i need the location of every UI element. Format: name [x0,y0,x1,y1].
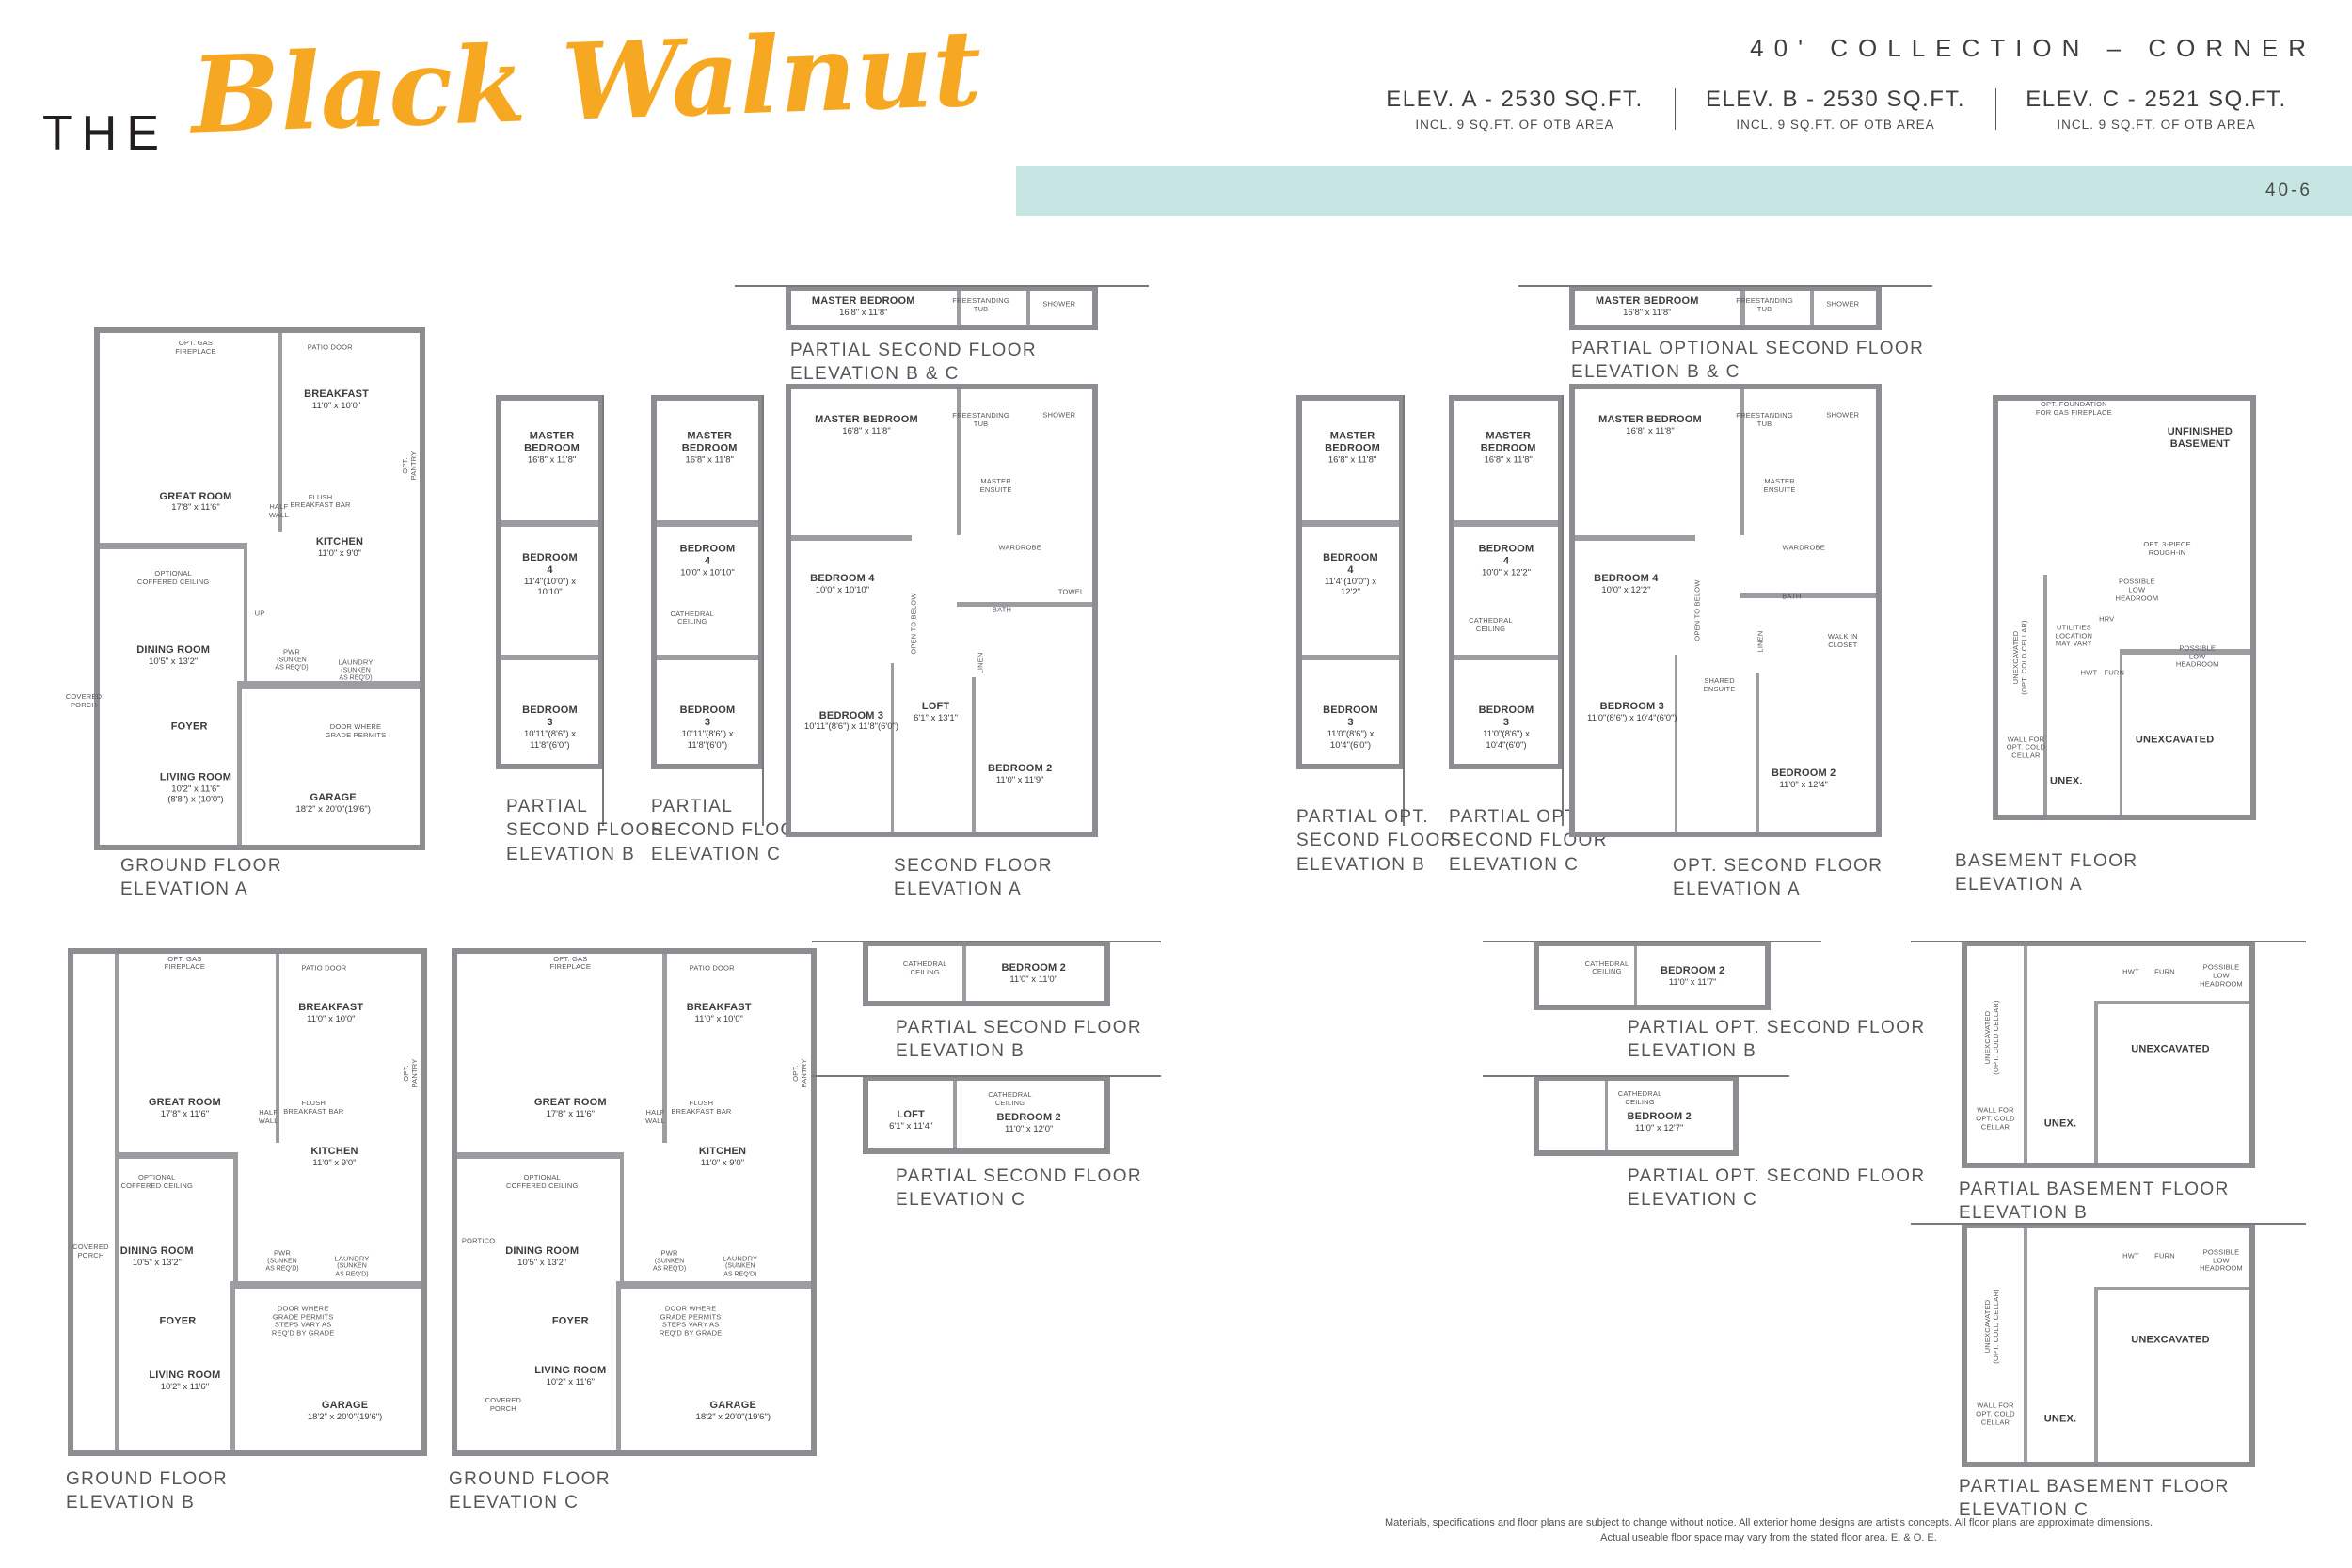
room-dimensions: 10'5" x 13'2" [120,1258,194,1268]
room-dimensions: 11'0" x 12'4" [1772,779,1836,789]
room-dimensions: 16'8" x 11'8" [812,307,915,317]
room-label: DINING ROOM10'5" x 13'2" [136,644,210,667]
room-name: BEDROOM 4 [1479,543,1534,567]
room-dimensions: 17'8" x 11'6" [149,1109,221,1119]
room-label: UTILITIES LOCATION MAY VARY [2056,625,2092,650]
room-dimensions: 16'8" x 11'8" [524,455,580,466]
room-label: FREESTANDING TUB [952,412,1009,429]
room-name: PATIO DOOR [301,964,346,973]
room-name: HWT [2122,1252,2139,1260]
room-dimensions: 16'8" x 11'8" [815,425,918,436]
room-label: OPT. GAS FIREPLACE [175,340,215,356]
room-name: MASTER ENSUITE [1764,479,1796,496]
room-name: OPT. GAS FIREPLACE [175,340,215,356]
room-name: UNEXCAVATED (OPT. COLD CELLAR) [1984,1000,2001,1074]
room-dimensions: (SUNKEN AS REQ'D) [723,1263,757,1279]
room-dimensions: (SUNKEN AS REQ'D) [653,1259,686,1275]
room-label: FLUSH BREAKFAST BAR [671,1100,731,1117]
room-name: PWR [265,1250,298,1259]
room-label: OPT. PANTRY [792,1058,809,1087]
room-label: FLUSH BREAKFAST BAR [291,494,351,511]
plan-caption-bc-top-1: PARTIAL SECOND FLOOR ELEVATION B & C [790,339,1037,387]
room-dimensions: 10'2" x 11'6" [149,1382,220,1392]
interior-wall [501,655,598,660]
room-label: LAUNDRY(SUNKEN AS REQ'D) [334,1255,369,1278]
room-label: BEDROOM 311'0"(8'6") x 10'4"(6'0") [1587,701,1677,723]
room-label: LINEN [1757,630,1766,652]
room-label: LAUNDRY(SUNKEN AS REQ'D) [338,658,373,682]
room-label: OPT. GAS FIREPLACE [165,956,205,973]
room-label: WALL FOR OPT. COLD CELLAR [2007,736,2045,761]
room-label: TOWEL [1058,589,1085,597]
room-name: UNEXCAVATED (OPT. COLD CELLAR) [1984,1289,2001,1363]
room-label: OPT. PANTRY [403,1058,420,1087]
room-name: BEDROOM 3 [522,705,578,729]
room-name: MASTER BEDROOM [524,431,580,455]
room-label: OPEN TO BELOW [1694,579,1703,641]
room-dimensions: 11'0" x 9'0" [316,548,363,559]
room-label: UNEXCAVATED [2131,1044,2209,1056]
room-label: KITCHEN11'0" x 9'0" [310,1146,358,1168]
room-name: BEDROOM 4 [680,543,736,567]
room-label: BEDROOM 211'0" x 11'0" [1001,962,1065,985]
room-name: BEDROOM 2 [1772,768,1836,780]
room-name: FREESTANDING TUB [952,412,1009,429]
room-dimensions: 18'2" x 20'0"(19'6") [696,1412,771,1422]
room-label: MASTER BEDROOM16'8" x 11'8" [815,414,918,436]
room-name: UNEXCAVATED (OPT. COLD CELLAR) [2012,620,2029,694]
room-label: OPT. FOUNDATION FOR GAS FIREPLACE [2036,401,2112,418]
room-label: BEDROOM 211'0" x 11'9" [988,763,1052,785]
interior-wall [2024,946,2027,1163]
room-label: LOFT6'1" x 11'4" [889,1109,932,1132]
plan-caption-partial-opt-2nd-b-r1: PARTIAL OPT. SECOND FLOOR ELEVATION B [1296,805,1455,877]
room-dimensions: 16'8" x 11'8" [1598,425,1702,436]
room-dimensions: 10'0" x 10'10" [680,567,736,578]
room-name: UNEX. [2044,1117,2077,1130]
interior-wall [2094,1001,2098,1164]
room-name: GREAT ROOM [160,490,232,502]
room-name: DOOR WHERE GRADE PERMITS [326,723,387,740]
room-label: WALL FOR OPT. COLD CELLAR [1976,1107,2014,1132]
room-name: PATIO DOOR [308,344,353,353]
room-name: FREESTANDING TUB [1736,297,1793,314]
room-dimensions: 10'0" x 12'2" [1479,567,1534,578]
room-name: DINING ROOM [505,1245,579,1258]
room-label: PATIO DOOR [690,964,735,973]
floorplan-bc-top-1: MASTER BEDROOM16'8" x 11'8"FREESTANDING … [786,285,1098,330]
room-name: BEDROOM 3 [804,709,898,721]
room-label: MASTER ENSUITE [980,479,1012,496]
room-dimensions: 10'2" x 11'6" [534,1377,606,1387]
interior-wall [1634,946,1638,1005]
room-label: COVERED PORCH [72,1243,109,1260]
interior-wall [620,1152,625,1281]
room-label: BEDROOM 211'0" x 11'7" [1661,965,1724,988]
interior-wall [972,677,976,832]
room-name: CATHEDRAL CEILING [670,610,714,627]
room-name: PWR [653,1250,686,1259]
room-label: WARDROBE [1782,545,1825,553]
room-name: FLUSH BREAKFAST BAR [283,1100,343,1117]
room-dimensions: 10'5" x 13'2" [136,657,210,667]
room-name: FREESTANDING TUB [1736,412,1793,429]
interior-wall [1454,655,1558,660]
room-dimensions: 11'0" x 12'7" [1628,1123,1692,1133]
room-name: BEDROOM 2 [996,1112,1060,1124]
room-label: BEDROOM 211'0" x 12'0" [996,1112,1060,1134]
room-label: PWR(SUNKEN AS REQ'D) [265,1250,298,1274]
plan-caption-opt-bc-top: PARTIAL OPTIONAL SECOND FLOOR ELEVATION … [1571,337,1924,385]
room-label: DINING ROOM10'5" x 13'2" [505,1245,579,1268]
room-label: LOFT6'1" x 13'1" [914,701,958,723]
interior-wall [237,681,242,845]
room-name: OPT. PANTRY [402,451,419,481]
floorplan-ground-b: OPT. GAS FIREPLACEPATIO DOORBREAKFAST11'… [68,948,427,1456]
room-label: PATIO DOOR [308,344,353,353]
room-label: FOYER [160,1315,197,1327]
room-label: SHOWER [1042,412,1075,420]
room-label: CATHEDRAL CEILING [903,961,947,978]
room-name: MASTER BEDROOM [812,294,915,307]
room-name: UNEXCAVATED [2131,1335,2209,1347]
room-name: TOWEL [1058,589,1085,597]
plan-caption-ground-b: GROUND FLOOR ELEVATION B [66,1467,228,1515]
room-name: WALL FOR OPT. COLD CELLAR [1976,1402,2014,1428]
room-label: MASTER BEDROOM16'8" x 11'8" [1325,431,1380,466]
room-label: UNEXCAVATED (OPT. COLD CELLAR) [1984,1000,2001,1074]
room-label: OPT. 3-PIECE ROUGH-IN [2143,542,2190,559]
room-dimensions: (SUNKEN AS REQ'D) [275,657,308,673]
room-dimensions: (SUNKEN AS REQ'D) [265,1259,298,1275]
room-name: LINEN [977,653,985,674]
room-label: PWR(SUNKEN AS REQ'D) [653,1250,686,1274]
room-dimensions: 16'8" x 11'8" [1481,455,1536,466]
room-label: BEDROOM 411'4"(10'0") x 10'10" [522,552,578,597]
interior-wall [616,1281,621,1450]
room-name: GREAT ROOM [534,1097,607,1109]
room-name: BEDROOM 4 [1323,552,1378,577]
interior-wall [230,1281,422,1288]
room-label: UNFINISHED BASEMENT [2168,426,2233,451]
room-label: UNEXCAVATED (OPT. COLD CELLAR) [1984,1289,2001,1363]
floorplan-partial-2nd-b-r2: CATHEDRAL CEILINGBEDROOM 211'0" x 11'0" [863,941,1110,1006]
brochure-page: THE Black Walnut 40' COLLECTION – CORNER… [0,0,2352,1568]
room-name: HALF WALL [645,1109,665,1126]
plan-caption-partial-opt-2nd-b-r2: PARTIAL OPT. SECOND FLOOR ELEVATION B [1628,1016,1926,1064]
interior-wall [957,602,1092,608]
interior-wall [962,946,966,1001]
room-name: LIVING ROOM [534,1365,606,1377]
interior-wall [1756,673,1759,832]
interior-wall [115,1152,233,1158]
room-name: SHOWER [1826,301,1859,309]
room-label: BREAKFAST11'0" x 10'0" [298,1002,363,1024]
room-dimensions: 17'8" x 11'6" [534,1109,607,1119]
interior-wall [1740,593,1876,598]
room-label: SHARED ENSUITE [1704,677,1736,694]
room-label: CATHEDRAL CEILING [988,1091,1032,1108]
room-name: LOFT [889,1109,932,1121]
room-dimensions: 11'0" x 12'0" [996,1124,1060,1134]
room-name: DINING ROOM [136,644,210,657]
room-label: GARAGE18'2" x 20'0"(19'6") [308,1400,382,1422]
room-label: FOYER [552,1315,589,1327]
room-name: MASTER BEDROOM [1598,414,1702,426]
interior-wall [244,543,247,681]
room-name: BEDROOM 4 [522,552,578,577]
room-label: HALF WALL [269,504,289,521]
room-label: DOOR WHERE GRADE PERMITS STEPS VARY AS R… [272,1305,335,1338]
room-name: MASTER BEDROOM [682,431,738,455]
room-dimensions: 11'0" x 10'0" [687,1014,752,1024]
room-label: CATHEDRAL CEILING [1618,1090,1662,1107]
room-name: HRV [2099,616,2114,625]
room-name: OPTIONAL COFFERED CEILING [121,1174,194,1191]
room-label: MASTER BEDROOM16'8" x 11'8" [1598,414,1702,436]
room-name: HWT [2122,968,2139,976]
interior-wall [2043,575,2047,815]
room-name: BEDROOM 3 [1479,705,1534,729]
room-label: POSSIBLE LOW HEADROOM [2200,964,2243,990]
floorplan-partial-2nd-c-r2: LOFT6'1" x 11'4"CATHEDRAL CEILINGBEDROOM… [863,1075,1110,1154]
plan-caption-ground-a: GROUND FLOOR ELEVATION A [120,854,282,902]
room-name: PATIO DOOR [690,964,735,973]
room-label: UNEX. [2044,1414,2077,1426]
room-label: GREAT ROOM17'8" x 11'6" [160,490,232,513]
room-label: COVERED PORCH [485,1398,522,1415]
room-name: OPTIONAL COFFERED CEILING [137,570,210,587]
room-name: BEDROOM 4 [810,573,874,585]
room-name: BATH [1782,593,1801,601]
interior-wall [501,520,598,526]
room-label: BEDROOM 410'0" x 10'10" [680,543,736,578]
room-dimensions: 10'11"(8'6") x 11'8"(6'0") [680,729,736,750]
room-dimensions: 10'0" x 12'2" [1594,585,1658,595]
room-label: FLUSH BREAKFAST BAR [283,1100,343,1117]
room-name: WARDROBE [1782,545,1825,553]
interior-wall [891,663,895,832]
room-dimensions: 11'4"(10'0") x 12'2" [1323,577,1378,597]
interior-wall [1026,291,1030,325]
room-label: HWT [2081,670,2098,678]
interior-wall [1454,520,1558,526]
room-name: POSSIBLE LOW HEADROOM [2176,645,2219,671]
room-dimensions: 11'0" x 10'0" [298,1014,363,1024]
room-label: OPTIONAL COFFERED CEILING [506,1174,579,1191]
room-label: MASTER ENSUITE [1764,479,1796,496]
room-name: UNEXCAVATED [2131,1044,2209,1056]
room-label: PWR(SUNKEN AS REQ'D) [275,648,308,672]
interior-wall [1810,291,1814,325]
room-label: OPT. GAS FIREPLACE [550,956,591,973]
room-name: KITCHEN [310,1146,358,1158]
interior-wall [2094,1287,2249,1290]
room-name: LIVING ROOM [160,771,231,784]
interior-wall [2094,1287,2098,1462]
floorplan-opt-second-a: MASTER BEDROOM16'8" x 11'8"FREESTANDING … [1569,384,1882,837]
room-name: BREAKFAST [298,1002,363,1014]
room-label: BEDROOM 311'0"(8'6") x 10'4"(6'0") [1479,705,1534,750]
plan-caption-partial-basement-b: PARTIAL BASEMENT FLOOR ELEVATION B [1959,1178,2230,1226]
room-name: FURN [2154,968,2175,976]
room-name: OPT. GAS FIREPLACE [165,956,205,973]
plan-caption-partial-2nd-b-r2: PARTIAL SECOND FLOOR ELEVATION B [896,1016,1142,1064]
room-dimensions: 10'11"(8'6") x 11'8"(6'0") [522,729,578,750]
room-name: HWT [2081,670,2098,678]
room-label: POSSIBLE LOW HEADROOM [2116,578,2159,604]
room-name: WALK IN CLOSET [1828,633,1858,650]
room-name: LAUNDRY [723,1255,757,1263]
plan-caption-ground-c: GROUND FLOOR ELEVATION C [449,1467,611,1515]
room-name: CATHEDRAL CEILING [1618,1090,1662,1107]
room-label: HWT [2122,1252,2139,1260]
floorplan-opt-bc-top: MASTER BEDROOM16'8" x 11'8"FREESTANDING … [1569,285,1882,330]
room-name: KITCHEN [316,536,363,548]
room-label: GARAGE18'2" x 20'0"(19'6") [696,1400,771,1422]
room-label: FURN [2154,968,2175,976]
interior-wall [1575,535,1695,541]
room-label: LIVING ROOM10'2" x 11'6" [149,1370,220,1392]
room-dimensions: 18'2" x 20'0"(19'6") [308,1412,382,1422]
floorplans-layer: OPT. GAS FIREPLACEPATIO DOORBREAKFAST11'… [0,0,2352,1568]
room-name: DOOR WHERE GRADE PERMITS STEPS VARY AS R… [660,1305,723,1338]
disclaimer: Materials, specifications and floor plan… [1336,1516,2201,1546]
room-label: BEDROOM 211'0" x 12'7" [1628,1111,1692,1133]
interior-wall [2094,1001,2249,1004]
floorplan-ground-c: OPT. GAS FIREPLACEPATIO DOORBREAKFAST11'… [452,948,817,1456]
room-label: OPTIONAL COFFERED CEILING [137,570,210,587]
room-label: CATHEDRAL CEILING [670,610,714,627]
room-name: CATHEDRAL CEILING [1585,960,1629,977]
room-name: BEDROOM 2 [1628,1111,1692,1123]
room-dimensions: 6'1" x 13'1" [914,713,958,723]
interior-wall [616,1281,811,1288]
room-name: FLUSH BREAKFAST BAR [671,1100,731,1117]
plan-caption-partial-2nd-b-r1: PARTIAL SECOND FLOOR ELEVATION B [506,795,665,866]
room-label: BEDROOM 410'0" x 10'10" [810,573,874,595]
room-label: COVERED PORCH [66,693,103,710]
room-dimensions: 11'0" x 9'0" [310,1158,358,1168]
room-name: BEDROOM 2 [1001,962,1065,974]
room-label: WALL FOR OPT. COLD CELLAR [1976,1402,2014,1428]
room-name: BATH [993,607,1011,615]
room-label: PORTICO [462,1238,495,1246]
room-name: KITCHEN [699,1146,746,1158]
room-label: MASTER BEDROOM16'8" x 11'8" [1481,431,1536,466]
floorplan-partial-opt-2nd-c-r1: MASTER BEDROOM16'8" x 11'8"BEDROOM 410'0… [1449,395,1564,769]
room-name: CATHEDRAL CEILING [988,1091,1032,1108]
room-name: BEDROOM 4 [1594,573,1658,585]
room-name: MASTER BEDROOM [1481,431,1536,455]
room-name: BEDROOM 2 [1661,965,1724,977]
plan-caption-partial-2nd-c-r2: PARTIAL SECOND FLOOR ELEVATION C [896,1164,1142,1212]
room-name: OPTIONAL COFFERED CEILING [506,1174,579,1191]
room-label: WALK IN CLOSET [1828,633,1858,650]
floorplan-second-a: MASTER BEDROOM16'8" x 11'8"FREESTANDING … [786,384,1098,837]
room-label: FREESTANDING TUB [1736,412,1793,429]
interior-wall [657,655,758,660]
room-label: BEDROOM 410'0" x 12'2" [1479,543,1534,578]
room-label: MASTER BEDROOM16'8" x 11'8" [812,294,915,317]
interior-wall [791,535,912,541]
floorplan-partial-basement-c: HWTFURNPOSSIBLE LOW HEADROOMUNEXCAVATED … [1962,1223,2255,1467]
room-name: FREESTANDING TUB [952,297,1009,314]
room-name: LOFT [914,701,958,713]
room-dimensions: 11'0"(8'6") x 10'4"(6'0") [1323,729,1378,750]
room-name: UNEXCAVATED [2136,734,2214,746]
room-name: POSSIBLE LOW HEADROOM [2116,578,2159,604]
floorplan-ground-a: OPT. GAS FIREPLACEPATIO DOORBREAKFAST11'… [94,327,425,850]
room-label: POSSIBLE LOW HEADROOM [2176,645,2219,671]
interior-wall [237,681,420,689]
room-label: SHOWER [1042,301,1075,309]
plan-caption-second-a: SECOND FLOOR ELEVATION A [894,854,1053,902]
room-label: BEDROOM 310'11"(8'6") x 11'8"(6'0") [522,705,578,750]
room-label: BATH [1782,593,1801,601]
room-name: UNFINISHED BASEMENT [2168,426,2233,451]
room-label: DOOR WHERE GRADE PERMITS [326,723,387,740]
room-label: UNEXCAVATED (OPT. COLD CELLAR) [2012,620,2029,694]
room-name: GARAGE [295,792,370,804]
room-name: CATHEDRAL CEILING [1469,617,1513,634]
room-dimensions: 11'0" x 11'7" [1661,977,1724,988]
room-name: GREAT ROOM [149,1097,221,1109]
interior-wall [953,1081,957,1148]
room-label: HRV [2099,616,2114,625]
room-dimensions: 17'8" x 11'6" [160,502,232,513]
room-name: OPT. GAS FIREPLACE [550,956,591,973]
room-name: LINEN [1757,630,1766,652]
floorplan-partial-opt-2nd-b-r1: MASTER BEDROOM16'8" x 11'8"BEDROOM 411'4… [1296,395,1405,769]
room-label: OPEN TO BELOW [911,593,919,654]
room-name: WARDROBE [998,545,1041,553]
room-label: LAUNDRY(SUNKEN AS REQ'D) [723,1255,757,1278]
room-name: LAUNDRY [334,1255,369,1263]
room-name: WALL FOR OPT. COLD CELLAR [2007,736,2045,761]
interior-wall [1302,655,1399,660]
room-name: COVERED PORCH [485,1398,522,1415]
room-name: FURN [2104,670,2124,678]
room-name: GARAGE [308,1400,382,1412]
room-label: MASTER BEDROOM16'8" x 11'8" [524,431,580,466]
interior-wall [233,1152,237,1281]
interior-wall [100,543,244,549]
room-label: FREESTANDING TUB [1736,297,1793,314]
room-dimensions: 11'0" x 11'9" [988,775,1052,785]
floorplan-partial-2nd-c-r1: MASTER BEDROOM16'8" x 11'8"BEDROOM 410'0… [651,395,764,769]
room-dimensions: 11'0"(8'6") x 10'4"(6'0") [1479,729,1534,750]
room-dimensions: 11'0" x 9'0" [699,1158,746,1168]
room-label: GREAT ROOM17'8" x 11'6" [149,1097,221,1119]
room-name: SHOWER [1042,412,1075,420]
plan-caption-opt-second-a: OPT. SECOND FLOOR ELEVATION A [1673,854,1883,902]
room-label: LIVING ROOM10'2" x 11'6"(8'8") x (10'0") [160,771,231,804]
room-name: MASTER BEDROOM [1596,294,1699,307]
room-label: CATHEDRAL CEILING [1469,617,1513,634]
room-label: HALF WALL [645,1109,665,1126]
room-name: FOYER [160,1315,197,1327]
room-dimensions: 11'4"(10'0") x 10'10" [522,577,578,597]
interior-wall [2024,1228,2027,1462]
room-name: OPEN TO BELOW [1694,579,1703,641]
interior-wall [457,1152,620,1158]
room-label: UP [255,610,265,619]
room-label: BREAKFAST11'0" x 10'0" [304,388,369,411]
room-name: MASTER BEDROOM [815,414,918,426]
interior-wall [230,1281,235,1450]
room-name: OPT. PANTRY [403,1058,420,1087]
